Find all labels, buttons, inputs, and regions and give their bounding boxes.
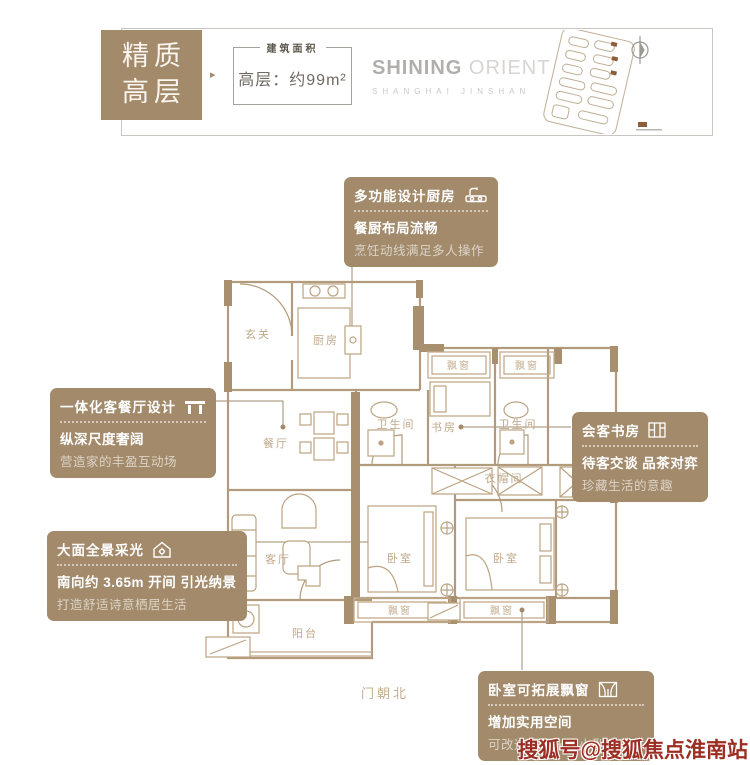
table-icon <box>184 399 206 414</box>
bed1-icon <box>368 506 436 592</box>
room-label-living: 客厅 <box>265 552 291 566</box>
room-label-study: 书房 <box>431 421 457 434</box>
callout-study-line2: 珍藏生活的意趣 <box>582 475 698 494</box>
bay-window-icon <box>598 681 618 698</box>
side-table <box>298 566 320 586</box>
watermark: 搜狐号@搜狐焦点淮南站 <box>518 734 748 764</box>
callout-daylight-line1: 南向约 3.65m 开间 引光纳景 <box>57 571 237 591</box>
callout-living-dining: 一体化客餐厅设计 纵深尺度奢阔 营造家的丰盈互动场 <box>50 388 216 478</box>
room-label-balcony: 阳台 <box>292 626 318 640</box>
bay-window-label: 飘窗 <box>515 359 539 372</box>
bay-window-label: 飘窗 <box>388 604 412 617</box>
dotted-divider <box>488 704 644 706</box>
dotted-divider <box>57 564 237 566</box>
callout-study: 会客书房 待客交谈 品茶对弈 珍藏生活的意趣 <box>572 412 708 502</box>
kitchen-sink-icon <box>464 187 488 203</box>
callout-living-dining-line2: 营造家的丰盈互动场 <box>60 451 206 470</box>
room-label-entry: 玄关 <box>245 327 271 341</box>
callout-living-dining-title: 一体化客餐厅设计 <box>60 396 176 416</box>
room-label-bath1: 卫生间 <box>377 417 416 431</box>
callout-kitchen-line2: 烹饪动线满足多人操作 <box>354 240 488 259</box>
bookshelf-icon <box>648 422 666 438</box>
callout-baywindow-line1: 增加实用空间 <box>488 711 644 731</box>
study-bed <box>430 382 490 416</box>
stove-icon <box>303 284 345 298</box>
house-sun-icon <box>152 541 172 558</box>
dotted-divider <box>60 421 206 423</box>
room-label-dining: 餐厅 <box>263 436 289 450</box>
room-label-kitchen: 厨房 <box>313 334 339 347</box>
kitchen-sink-shape <box>345 326 361 354</box>
callout-kitchen-line1: 餐厨布局流畅 <box>354 217 488 237</box>
callout-daylight-line2: 打造舒适诗意栖居生活 <box>57 594 237 613</box>
callout-daylight-title: 大面全景采光 <box>57 539 144 559</box>
armchair-icon <box>282 494 316 528</box>
room-label-bedroom1: 卧室 <box>387 551 413 565</box>
callout-baywindow-title: 卧室可拓展飘窗 <box>488 679 590 699</box>
room-label-bedroom2: 卧室 <box>493 551 519 565</box>
callout-living-dining-line1: 纵深尺度奢阔 <box>60 428 206 448</box>
callout-study-line1: 待客交谈 品茶对弈 <box>582 452 698 472</box>
callout-kitchen: 多功能设计厨房 餐厨布局流畅 烹饪动线满足多人操作 <box>344 177 498 267</box>
room-label-cloak: 衣帽间 <box>485 471 524 485</box>
floorplan: 玄关 厨房 餐厅 卫生间 书房 卫生间 衣帽间 客厅 卧室 卧室 阳台 飘窗 飘… <box>0 0 750 765</box>
callout-kitchen-title: 多功能设计厨房 <box>354 185 456 205</box>
dining-table <box>300 412 348 460</box>
bay-window-label: 飘窗 <box>447 359 471 372</box>
callout-daylight: 大面全景采光 南向约 3.65m 开间 引光纳景 打造舒适诗意栖居生活 <box>47 531 247 621</box>
dotted-divider <box>354 210 488 212</box>
room-label-bath2: 卫生间 <box>499 417 538 431</box>
dotted-divider <box>582 445 698 447</box>
bay-window-label: 飘窗 <box>490 604 514 617</box>
callout-study-title: 会客书房 <box>582 420 640 440</box>
north-orientation-note: 门朝北 <box>361 686 409 701</box>
